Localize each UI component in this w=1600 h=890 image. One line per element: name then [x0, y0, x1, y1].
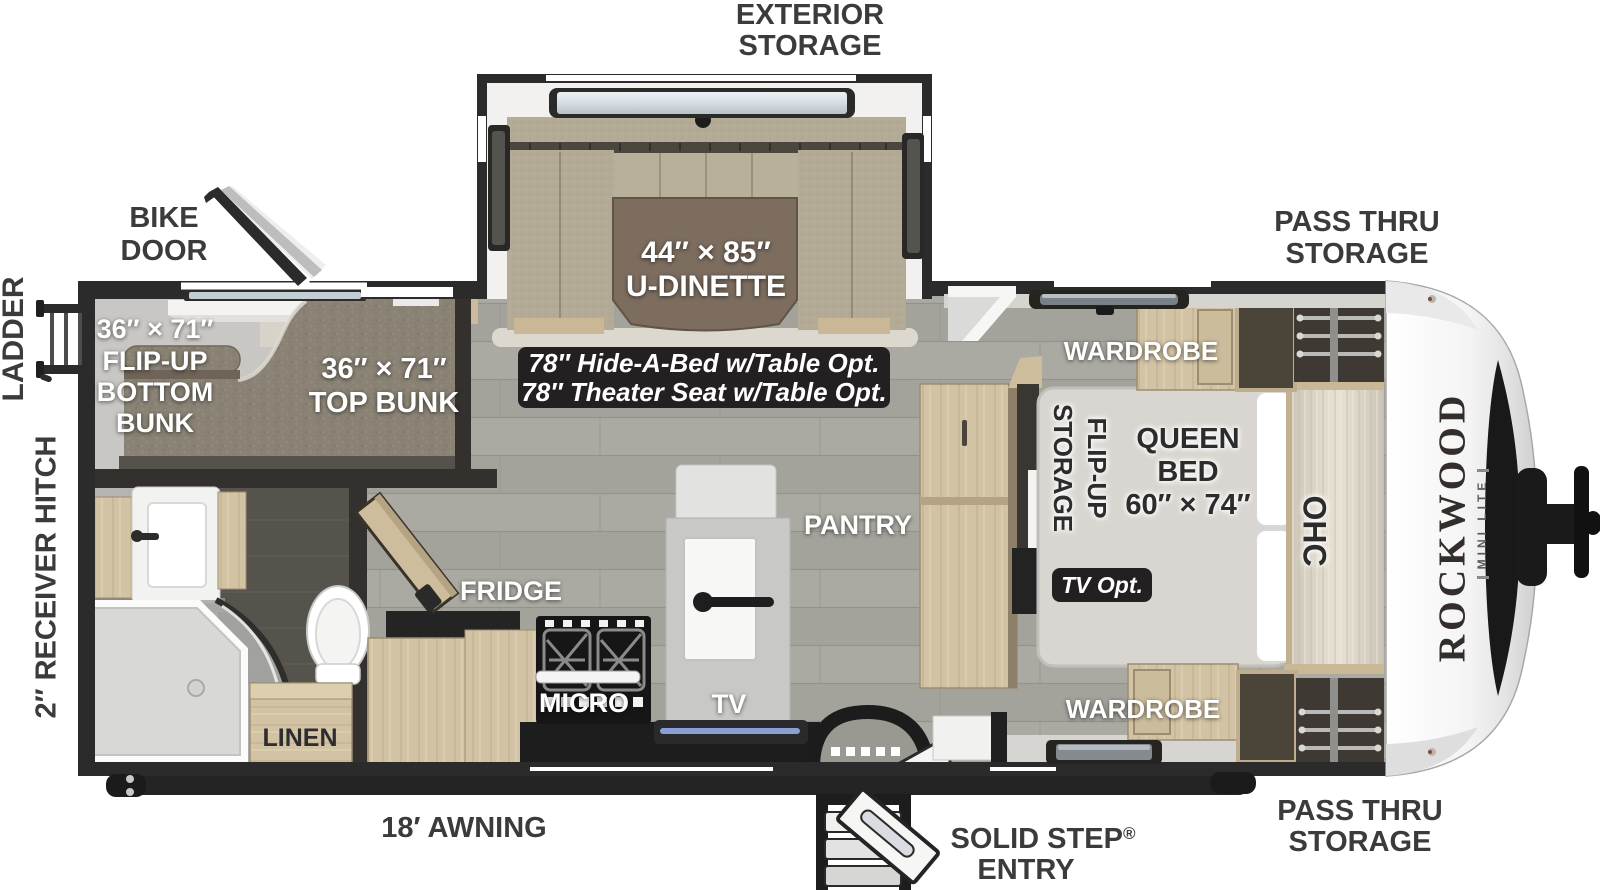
svg-text:44″ × 85″: 44″ × 85″ — [641, 236, 771, 269]
svg-text:PASS THRU: PASS THRU — [1277, 795, 1442, 827]
svg-text:18′ AWNING: 18′ AWNING — [381, 812, 546, 844]
svg-text:FLIP-UP: FLIP-UP — [103, 346, 208, 376]
svg-text:FRIDGE: FRIDGE — [460, 576, 562, 606]
svg-text:STORAGE: STORAGE — [1289, 826, 1432, 858]
svg-text:EXTERIOR: EXTERIOR — [736, 0, 884, 31]
svg-text:60″ × 74″: 60″ × 74″ — [1125, 489, 1250, 521]
svg-text:36″ × 71″: 36″ × 71″ — [97, 314, 214, 344]
svg-text:WARDROBE: WARDROBE — [1064, 336, 1219, 366]
svg-text:BED: BED — [1157, 456, 1218, 488]
svg-text:SOLID STEP®: SOLID STEP® — [951, 823, 1136, 855]
svg-text:2″ RECEIVER HITCH: 2″ RECEIVER HITCH — [31, 436, 63, 719]
svg-text:BOTTOM: BOTTOM — [97, 377, 214, 407]
svg-text:MICRO: MICRO — [539, 688, 629, 718]
svg-text:STORAGE: STORAGE — [739, 30, 882, 62]
svg-text:LADDER: LADDER — [0, 276, 30, 401]
svg-text:U-DINETTE: U-DINETTE — [626, 270, 786, 303]
svg-text:DOOR: DOOR — [121, 235, 208, 267]
svg-text:TV Opt.: TV Opt. — [1061, 572, 1143, 598]
svg-text:QUEEN: QUEEN — [1136, 423, 1239, 455]
svg-text:LINEN: LINEN — [263, 724, 338, 752]
svg-text:PASS THRU: PASS THRU — [1274, 206, 1439, 238]
svg-text:BUNK: BUNK — [116, 408, 194, 438]
svg-text:ROCKWOOD: ROCKWOOD — [1432, 392, 1474, 663]
svg-text:WARDROBE: WARDROBE — [1066, 694, 1221, 724]
svg-text:36″ × 71″: 36″ × 71″ — [321, 353, 446, 385]
svg-text:BIKE: BIKE — [129, 202, 198, 234]
svg-text:ENTRY: ENTRY — [977, 854, 1074, 886]
svg-text:OHC: OHC — [1297, 495, 1333, 566]
svg-text:TV: TV — [712, 689, 747, 719]
svg-text:TOP BUNK: TOP BUNK — [309, 387, 459, 419]
svg-text:STORAGE: STORAGE — [1286, 238, 1429, 270]
svg-text:78″ Theater Seat w/Table Opt.: 78″ Theater Seat w/Table Opt. — [521, 377, 887, 407]
svg-text:STORAGE: STORAGE — [1048, 404, 1078, 532]
svg-text:78″ Hide-A-Bed w/Table Opt.: 78″ Hide-A-Bed w/Table Opt. — [529, 348, 880, 378]
svg-text:MINI LITE: MINI LITE — [1475, 479, 1489, 570]
svg-text:PANTRY: PANTRY — [804, 510, 912, 540]
svg-text:FLIP-UP: FLIP-UP — [1082, 417, 1112, 518]
